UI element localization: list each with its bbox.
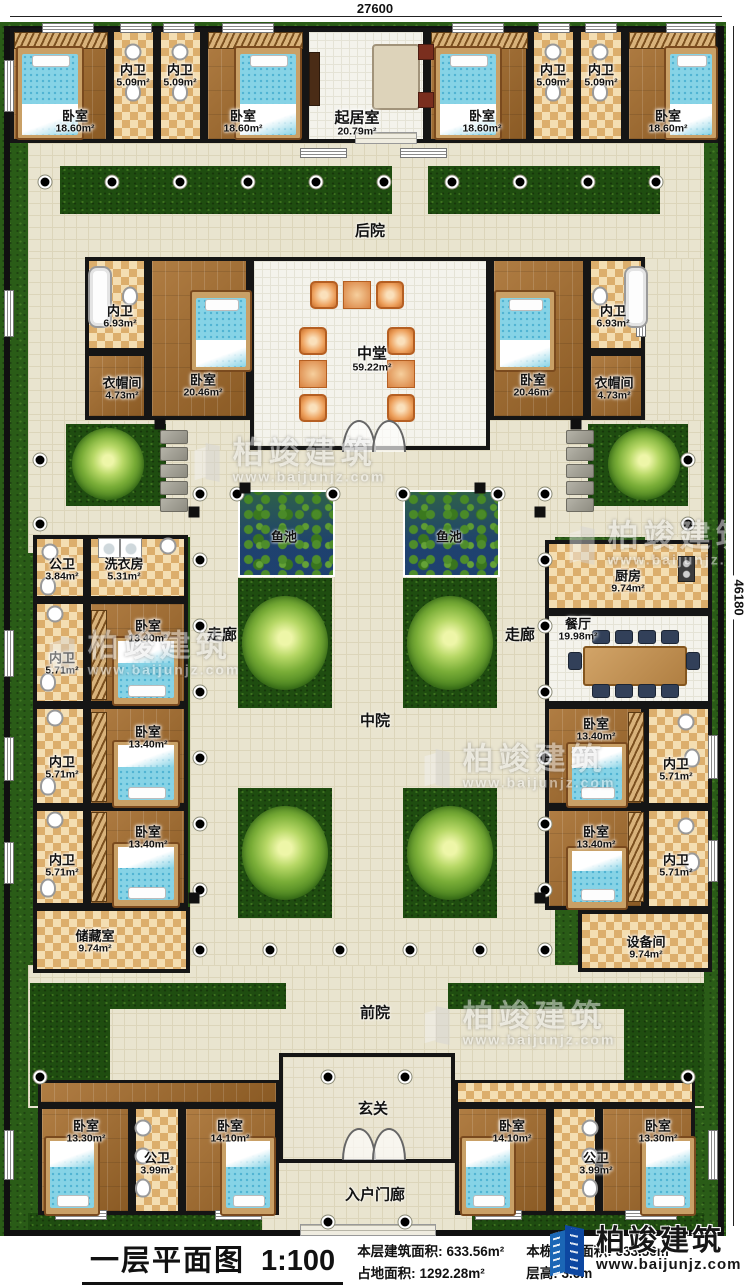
room-label: 餐厅19.98m² [558,618,597,643]
closet [628,712,644,802]
tree-courtyard-4 [407,806,493,900]
column-dot [322,1216,335,1229]
column-dot [399,1216,412,1229]
column-dot [310,176,323,189]
dimension-line [10,16,722,17]
stove [678,556,695,582]
pier [155,419,166,430]
blanket [646,1141,690,1167]
room-label: 卧室18.60m² [223,110,262,135]
window [4,290,14,337]
dining-chair [592,684,610,698]
room-label: 公卫3.99m² [140,1152,173,1177]
room-label: 内卫5.71m² [45,652,78,677]
room-label: 储藏室9.74m² [75,930,114,955]
blanket [572,747,622,768]
entry-porch-label: 入户门廊 [345,1184,405,1205]
column-dot [322,1071,335,1084]
bed [494,290,556,372]
closet [91,712,107,802]
toilet [122,287,138,306]
pier [189,893,200,904]
column-dot [194,488,207,501]
room-label: 卧室18.60m² [462,110,501,135]
stepping-stone [566,481,594,495]
stepping-stone [566,498,594,512]
column-dot [194,752,207,765]
column-dot [34,1071,47,1084]
room-label: 卧室18.60m² [55,110,94,135]
column-dot [446,176,459,189]
column-dot [39,176,52,189]
column-dot [194,818,207,831]
site-area: 占地面积: 1292.28m² [357,1262,504,1282]
dimension-right: 46180 [726,0,750,1236]
side-table [418,92,434,108]
column-dot [34,454,47,467]
bed [112,842,180,908]
sink [47,606,64,623]
pier [240,483,251,494]
column-dot [539,818,552,831]
bed [640,1136,696,1216]
tree-courtyard-2 [407,596,493,690]
corridor-label-left: 走廊 [207,624,237,645]
column-dot [539,620,552,633]
room-label: 设备间9.74m² [626,936,665,961]
room-label: 内卫5.71m² [45,756,78,781]
bed [190,290,252,372]
window [666,23,716,33]
column-dot [539,944,552,957]
pillow [205,299,239,311]
bed [566,846,628,910]
dining-chair [661,630,679,644]
brand-name: 柏竣建筑 [596,1225,724,1257]
brand-logo: 柏竣建筑www.baijunjz.com [548,1216,750,1285]
window [120,23,152,33]
room-label: 洗衣房5.31m² [104,558,143,583]
window [400,148,447,158]
brand-logo-icon [548,1225,590,1277]
stepping-stone [160,464,188,478]
room-label: 卧室13.40m² [128,620,167,645]
room-label: 卧室20.46m² [183,374,222,399]
column-dot [582,176,595,189]
hall-chair [387,394,415,422]
column-dot [539,488,552,501]
column-dot [242,176,255,189]
porch-steps [300,1224,436,1236]
room-label: 中堂59.22m² [352,347,391,374]
column-dot [264,944,277,957]
closet [91,812,107,902]
plan-name: 一层平面图 [90,1237,245,1279]
pillow [32,55,70,67]
dining-chair [686,652,700,670]
side-table [418,44,434,60]
room-label: 衣帽间4.73m² [102,377,141,402]
tree-right-garden [608,428,680,500]
stepping-stone [160,447,188,461]
tree-left-garden [72,428,144,500]
pillow [233,1195,264,1207]
fish-pond-label-left: 鱼池 [271,527,297,546]
pillow [250,55,288,67]
window [452,23,504,33]
pillow [128,685,166,697]
sink [172,44,189,61]
dimension-value: 27600 [351,1,399,16]
dining-chair [638,684,656,698]
dimension-line [733,26,734,1226]
room-label: 厨房9.74m² [611,570,644,595]
stepping-stone [566,464,594,478]
washing-machine [98,538,120,558]
sink [545,44,562,61]
dining-table [583,646,687,686]
bed [44,1136,100,1216]
bed [220,1136,276,1216]
corridor-label-right: 走廊 [505,624,535,645]
toilet [40,879,56,898]
room-label: 内卫5.09m² [163,64,196,89]
column-dot [378,176,391,189]
blanket [50,1141,94,1167]
stepping-stone [566,430,594,444]
column-dot [194,686,207,699]
pier [535,893,546,904]
blanket [572,851,622,871]
hall-chair [310,281,338,309]
dining-chair [661,684,679,698]
floor-plan-canvas: 卧室18.60m² 内卫5.09m² 内卫5.09m² 卧室18.60m² 起居… [0,0,750,1285]
bed [112,636,180,706]
dining-chair [568,652,582,670]
pillow [653,1195,684,1207]
column-dot [327,488,340,501]
room-label: 内卫5.71m² [659,854,692,879]
dining-chair [638,630,656,644]
column-dot [474,944,487,957]
room-label: 卧室13.30m² [66,1120,105,1145]
floor-area: 本层建筑面积: 633.56m² [357,1240,504,1260]
middle-courtyard-label: 中院 [360,710,390,731]
column-dot [106,176,119,189]
dining-chair [615,630,633,644]
pillow [473,1195,504,1207]
dining-chair [615,684,633,698]
column-dot [397,488,410,501]
column-dot [682,454,695,467]
room-label: 内卫5.71m² [45,854,78,879]
pillow [450,55,488,67]
window [300,148,347,158]
tv-cabinet [309,52,320,106]
column-dot [404,944,417,957]
room-label: 内卫6.93m² [103,305,136,330]
room-label: 内卫5.71m² [659,758,692,783]
dimension-top: 27600 [0,0,750,22]
room-label: 卧室13.40m² [128,726,167,751]
room-label: 卧室13.40m² [576,718,615,743]
pier [475,483,486,494]
room-label: 衣帽间4.73m² [594,377,633,402]
column-dot [539,686,552,699]
sink [582,1120,599,1137]
pillow [128,787,166,799]
room-label: 卧室13.40m² [128,826,167,851]
tree-courtyard-1 [242,596,328,690]
front-corridor-right [455,1080,695,1105]
plan-title: 一层平面图 1:100 [82,1237,343,1285]
closet [91,610,107,700]
bed [566,742,628,808]
window [4,630,14,677]
entrance-hall-label: 玄关 [358,1098,388,1119]
room-label: 公卫3.84m² [45,558,78,583]
tree-courtyard-3 [242,806,328,900]
sink [125,44,142,61]
room-label: 内卫5.09m² [116,64,149,89]
column-dot [399,1071,412,1084]
toilet [592,287,608,306]
room-label: 卧室14.10m² [492,1120,531,1145]
blanket [226,1141,270,1167]
dimension-value: 46180 [732,575,747,619]
tea-table [343,281,371,309]
room-label: 内卫5.09m² [584,64,617,89]
pier [535,507,546,518]
front-corridor-left [38,1080,279,1105]
column-dot [539,752,552,765]
site-plan: 卧室18.60m² 内卫5.09m² 内卫5.09m² 卧室18.60m² 起居… [0,0,726,1236]
backyard-label: 后院 [355,220,385,241]
column-dot [34,518,47,531]
room-label: 卧室20.46m² [513,374,552,399]
column-dot [682,1071,695,1084]
room-label: 卧室18.60m² [648,110,687,135]
window [222,23,274,33]
sink [592,44,609,61]
pillow [581,889,615,901]
closet [628,812,644,902]
window [4,1130,14,1180]
window [4,737,14,781]
blanket [500,340,550,367]
window [708,1130,718,1180]
blanket [466,1141,510,1167]
column-dot [514,176,527,189]
stepping-stone [566,447,594,461]
room-label: 起居室20.79m² [334,111,379,138]
stepping-stone [160,430,188,444]
window [4,60,14,112]
column-dot [174,176,187,189]
column-dot [334,944,347,957]
sink [47,812,64,829]
sink [678,818,695,835]
pillow [128,887,166,899]
pillow [581,787,615,799]
fish-pond-label-right: 鱼池 [436,527,462,546]
window [163,23,195,33]
window [538,23,570,33]
window [708,735,718,779]
pillow [509,299,543,311]
pier [189,507,200,518]
window [585,23,617,33]
sink [678,714,695,731]
window [42,23,94,33]
front-yard-label: 前院 [360,1002,390,1023]
sink [160,538,177,555]
sink [135,1120,152,1137]
washing-machine [120,538,142,558]
stepping-stone [160,481,188,495]
toilet [135,1179,151,1198]
room-label: 卧室14.10m² [210,1120,249,1145]
sofa [372,44,420,110]
window [708,840,718,882]
sink [47,710,64,727]
window [4,842,14,884]
column-dot [194,620,207,633]
blanket [196,340,246,367]
pier [571,419,582,430]
column-dot [194,554,207,567]
pillow [677,55,707,67]
column-dot [492,488,505,501]
hall-chair [299,327,327,355]
room-label: 卧室13.40m² [576,826,615,851]
hall-chair [376,281,404,309]
tea-table [299,360,327,388]
room-label: 内卫5.09m² [536,64,569,89]
column-dot [650,176,663,189]
column-dot [194,944,207,957]
column-dot [539,554,552,567]
toilet [582,1179,598,1198]
room-label: 公卫3.99m² [579,1152,612,1177]
room-label: 卧室13.30m² [638,1120,677,1145]
column-dot [682,518,695,531]
hall-chair [299,394,327,422]
brand-url: www.baijunjz.com [596,1256,741,1273]
plan-scale: 1:100 [261,1245,335,1278]
room-label: 内卫6.93m² [596,305,629,330]
pillow [57,1195,88,1207]
stepping-stone [160,498,188,512]
bed [460,1136,516,1216]
